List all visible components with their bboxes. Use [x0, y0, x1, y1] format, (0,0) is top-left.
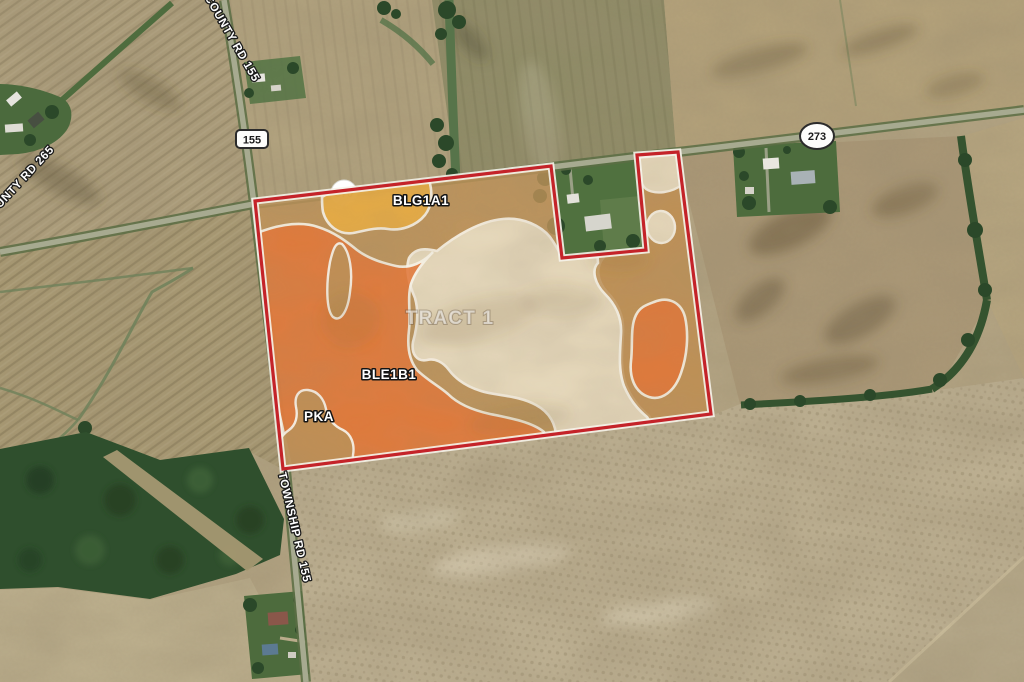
soil-label-pka: PKA	[304, 409, 334, 424]
farmstead-east	[733, 141, 840, 217]
tract-title: TRACT 1	[406, 308, 495, 329]
route-badge-273: 273	[800, 123, 834, 149]
route-badge-155: 155	[236, 130, 268, 148]
soil-label-blg1a1: BLG1A1	[393, 193, 449, 208]
route-badge-155-text: 155	[243, 135, 261, 147]
map-canvas[interactable]: 370 COUNTY RD 155 COUNTY RD 265 TOWNSHI	[0, 0, 1024, 682]
route-badge-273-text: 273	[808, 131, 826, 143]
satellite-map-view[interactable]: 370 COUNTY RD 155 COUNTY RD 265 TOWNSHI	[0, 0, 1024, 682]
soil-label-ble1b1: BLE1B1	[362, 367, 417, 382]
